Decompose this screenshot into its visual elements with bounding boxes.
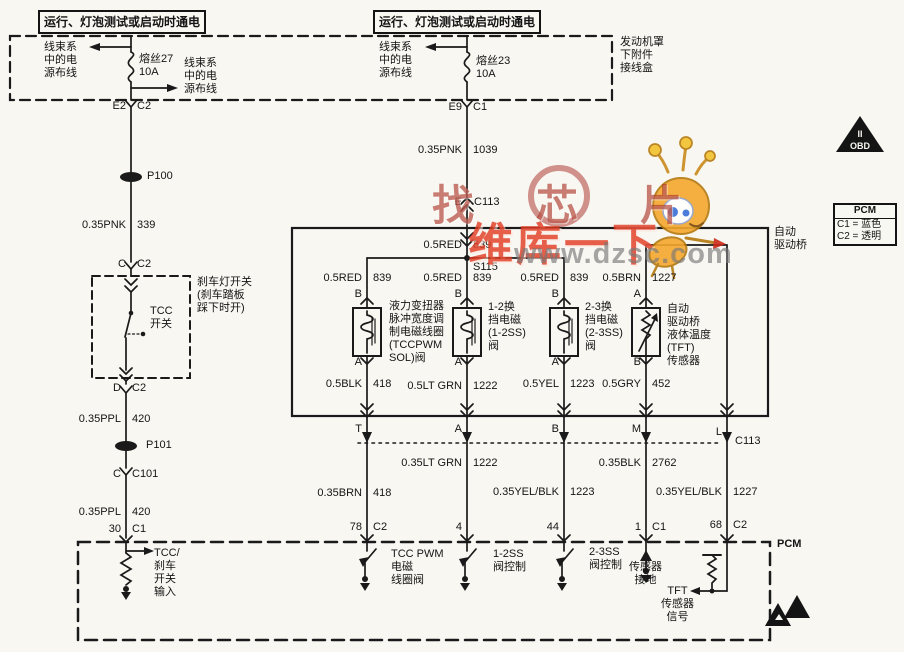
pin-4: 4 <box>352 521 462 534</box>
ss23-driver <box>556 542 573 591</box>
underhood-junction-box <box>10 36 612 198</box>
conn-c2: C2 <box>132 382 146 395</box>
tft-sensor-label: 自动 驱动桥 液体温度 (TFT) 传感器 <box>667 303 711 368</box>
fuse-27-icon <box>128 52 133 82</box>
arrow-left-icon <box>425 43 436 51</box>
branch2-wire-spec: 0.5RED <box>352 272 462 285</box>
ss12-solenoid-label: 1-2换 挡电磁 (1-2SS) 阀 <box>488 301 526 353</box>
conn-c101: C101 <box>132 468 158 481</box>
fuse27-left-note: 线束系 中的电 源布线 <box>44 41 77 80</box>
ss23-solenoid-label: 2-3换 挡电磁 (2-3SS) 阀 <box>585 301 623 353</box>
pin-d: D <box>11 382 121 395</box>
p100-label: P100 <box>147 170 173 183</box>
connector-c-c101-icon <box>120 468 132 475</box>
pin-c: C <box>16 258 126 271</box>
pin-e: E <box>352 196 462 209</box>
watermark-ring <box>531 168 587 224</box>
ss12-driver-label: 1-2SS 阀控制 <box>493 548 526 574</box>
wire-1223b-num: 1223 <box>570 486 594 499</box>
ground-icon <box>121 592 131 600</box>
pcm-tcc-input-label: TCC/ 刹车 开关 输入 <box>154 547 180 599</box>
svg-text:II: II <box>857 129 862 139</box>
fuse23-label: 熔丝23 10A <box>476 55 510 81</box>
branch1-term-top: B <box>252 288 362 301</box>
p100-grommet-icon <box>120 172 142 182</box>
pcm-label: PCM <box>777 538 801 551</box>
wire-452-num: 452 <box>652 378 670 391</box>
wire-2762-num: 2762 <box>652 457 676 470</box>
wire-1227b-num: 1227 <box>733 486 757 499</box>
conn-c113: C113 <box>474 196 499 209</box>
tcc-switch-label: TCC 开关 <box>150 305 173 331</box>
c113-term-t: T <box>252 423 362 436</box>
ground-icon <box>360 583 370 591</box>
obd2-icon: II OBD <box>836 116 884 152</box>
tft-signal-label: TFT 传感器 信号 <box>661 585 694 624</box>
pin-78: 78 <box>252 521 362 534</box>
arrow-right-icon <box>144 547 154 555</box>
solenoid-coil-icon <box>461 311 473 353</box>
arrow-right-icon <box>167 84 178 92</box>
branch1-wire-spec: 0.5RED <box>252 272 362 285</box>
wire-420a-num: 420 <box>132 413 150 426</box>
wire-1039-spec: 0.35PNK <box>352 144 462 157</box>
wire-1223b-spec: 0.35YEL/BLK <box>449 486 559 499</box>
solenoid-coil-icon <box>361 311 373 353</box>
fuse-23-circuit <box>425 36 473 198</box>
c113-term-a: A <box>352 423 462 436</box>
junction-box-label: 发动机罩 下附件 接线盒 <box>620 36 664 75</box>
pcm-connector-legend: PCM C1 = 蓝色 C2 = 透明 <box>833 203 897 246</box>
conn-c2: C2 <box>137 258 151 271</box>
esd-warning-icon <box>765 595 810 626</box>
power-mode-title-right: 运行、灯泡测试或启动时通电 <box>373 10 541 34</box>
tft-signal-circuit <box>690 542 727 595</box>
wire-418-spec: 0.5BLK <box>252 378 362 391</box>
pin-e2: E2 <box>16 100 126 113</box>
wire-1222b-spec: 0.35LT GRN <box>352 457 462 470</box>
connector-c-c2-icon <box>125 262 137 269</box>
pin-e9: E9 <box>352 101 462 114</box>
brake-switch-outline <box>92 276 190 378</box>
conn-c1: C1 <box>132 523 146 536</box>
junction-box-outline <box>10 36 612 100</box>
brake-switch-note: 刹车灯开关 (刹车踏板 踩下时开) <box>197 276 252 315</box>
arrow-up-icon <box>640 550 652 561</box>
pin-68: 68 <box>612 519 722 532</box>
svg-text:OBD: OBD <box>850 141 871 151</box>
p101-grommet-icon <box>115 441 137 451</box>
ss12-driver <box>459 542 476 591</box>
power-mode-title-left: 运行、灯泡测试或启动时通电 <box>38 10 206 34</box>
branch4-term-bot: B <box>531 356 641 369</box>
pullup-resistor-icon <box>708 555 716 588</box>
transaxle-label: 自动 驱动桥 <box>774 226 807 252</box>
legend-row-c2: C2 = 透明 <box>835 231 895 244</box>
legend-title: PCM <box>835 205 895 219</box>
wire-1039-num: 1039 <box>473 144 497 157</box>
wire-418b-spec: 0.35BRN <box>252 487 362 500</box>
tcc-switch-icon <box>125 311 145 337</box>
fuse27-right-note: 线束系 中的电 源布线 <box>184 57 217 96</box>
fuse27-label: 熔丝27 10A <box>139 53 173 79</box>
diagram-canvas: II OBD <box>0 0 904 652</box>
wire-418b-num: 418 <box>373 487 391 500</box>
wire-1227b-spec: 0.35YEL/BLK <box>612 486 722 499</box>
arrow-left-icon <box>89 43 100 51</box>
legend-row-c1: C1 = 蓝色 <box>835 219 895 232</box>
wire-452-spec: 0.5GRY <box>531 378 641 391</box>
pin-c: C <box>11 468 121 481</box>
c113-label: C113 <box>735 435 760 448</box>
ss23-driver-label: 2-3SS 阀控制 <box>589 546 622 572</box>
wire-1222-spec: 0.5LT GRN <box>352 380 462 393</box>
fuse23-left-note: 线束系 中的电 源布线 <box>379 41 412 80</box>
solenoid-coil-icon <box>558 311 570 353</box>
tcc-brake-input-circuit <box>121 542 154 600</box>
wire-1222b-num: 1222 <box>473 457 497 470</box>
ground-icon <box>460 583 470 591</box>
conn-c1: C1 <box>473 101 487 114</box>
p101-label: P101 <box>146 439 172 452</box>
tcc-pwm-driver <box>359 542 376 591</box>
wiring-diagram-page: II OBD 运行、灯泡测试或启动时通电 运行、灯泡测试或启动时通电 发动机罩 … <box>0 0 904 652</box>
pin-68-conn: C2 <box>733 519 747 532</box>
branch1-term-bot: A <box>252 356 362 369</box>
branch2-term-bot: A <box>352 356 462 369</box>
sensor-ground-label: 传感器 接地 <box>629 561 662 587</box>
wire-339-spec: 0.35PNK <box>16 219 126 232</box>
branch4-wire-num: 1227 <box>652 272 676 285</box>
ground-icon <box>557 583 567 591</box>
connector-e9-c1-icon <box>461 100 473 107</box>
wire-839-num: 839 <box>473 239 491 252</box>
watermark-mascot <box>531 137 726 278</box>
wire-420b-num: 420 <box>132 506 150 519</box>
connector-d-c2-icon <box>120 386 132 393</box>
wire-339-num: 339 <box>137 219 155 232</box>
branch4-term-top: A <box>531 288 641 301</box>
wire-420b-spec: 0.35PPL <box>11 506 121 519</box>
tcc-pwm-driver-label: TCC PWM 电磁 线圈阀 <box>391 548 444 587</box>
wire-839-spec: 0.5RED <box>352 239 462 252</box>
connector-e-c113-icon <box>461 198 473 204</box>
resistor-icon <box>121 553 131 585</box>
pin-30: 30 <box>11 523 121 536</box>
c113-term-l: L <box>612 426 722 439</box>
fuse-23-icon <box>464 52 469 82</box>
wire-2762-spec: 0.35BLK <box>531 457 641 470</box>
terminal-l-arrow <box>722 432 732 443</box>
connector-e2-c2-icon <box>125 100 137 107</box>
thermistor-icon <box>642 311 650 356</box>
conn-c2: C2 <box>137 100 151 113</box>
branch4-wire-spec: 0.5BRN <box>531 272 641 285</box>
wire-420a-spec: 0.35PPL <box>11 413 121 426</box>
